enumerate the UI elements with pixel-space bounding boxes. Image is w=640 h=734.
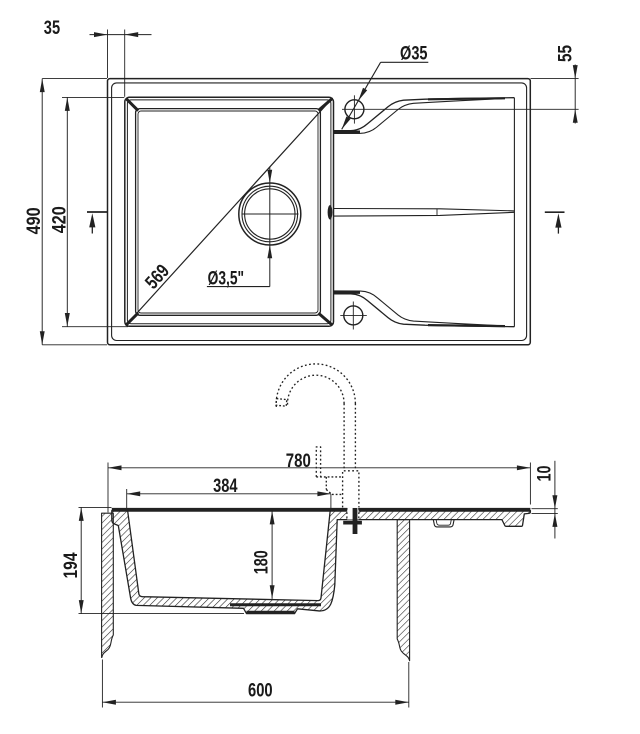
svg-text:490: 490 bbox=[24, 207, 45, 234]
svg-text:35: 35 bbox=[44, 18, 61, 39]
svg-text:55: 55 bbox=[555, 45, 576, 62]
svg-text:384: 384 bbox=[213, 476, 238, 497]
svg-text:180: 180 bbox=[252, 550, 273, 574]
svg-text:194: 194 bbox=[61, 552, 82, 578]
svg-text:600: 600 bbox=[248, 680, 273, 701]
svg-text:420: 420 bbox=[50, 206, 71, 233]
svg-text:Ø35: Ø35 bbox=[400, 44, 428, 65]
svg-text:10: 10 bbox=[534, 466, 555, 482]
svg-text:780: 780 bbox=[286, 451, 311, 472]
